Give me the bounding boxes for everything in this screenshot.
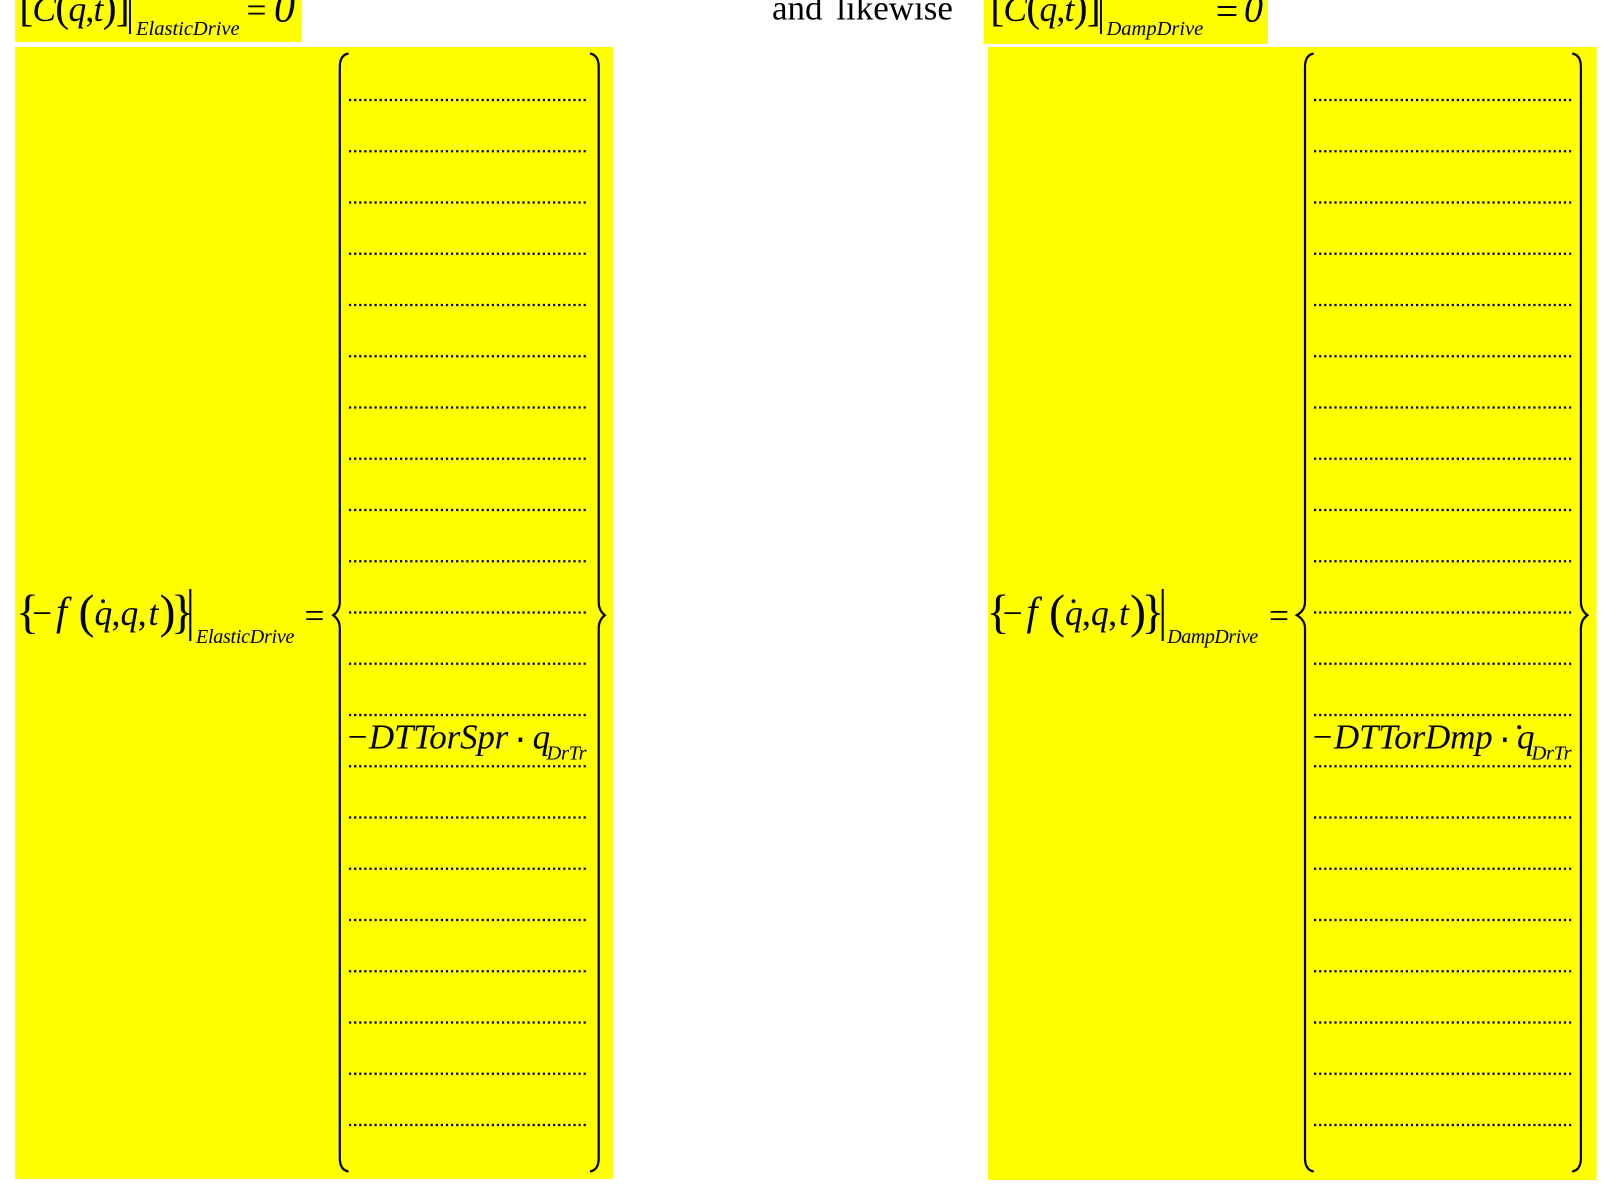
- svg-text:=: =: [1216, 0, 1239, 34]
- svg-text:0: 0: [1244, 0, 1263, 31]
- svg-text:0: 0: [274, 0, 295, 32]
- svg-text:DampDrive: DampDrive: [1166, 626, 1258, 648]
- svg-text:{−f(q,q,t)}: {−f(q,q,t)}: [16, 585, 194, 638]
- svg-text:ElasticDrive: ElasticDrive: [135, 18, 240, 40]
- svg-text:=: =: [305, 596, 325, 636]
- svg-text:DrTr: DrTr: [546, 743, 588, 765]
- svg-text:DampDrive: DampDrive: [1106, 18, 1204, 40]
- svg-text:[C(q,t)]: [C(q,t)]: [990, 0, 1100, 31]
- svg-text:DrTr: DrTr: [1531, 743, 1573, 765]
- svg-text:and likewise: and likewise: [772, 0, 953, 28]
- svg-text:ElasticDrive: ElasticDrive: [195, 626, 294, 648]
- svg-text:−DTTorSpr ⋅ q: −DTTorSpr ⋅ q: [346, 717, 550, 760]
- svg-text:[C(q,t)]: [C(q,t)]: [19, 0, 129, 31]
- svg-text:−DTTorDmp ⋅ q: −DTTorDmp ⋅ q: [1311, 717, 1535, 760]
- svg-text:=: =: [1269, 596, 1289, 636]
- svg-text:=: =: [247, 0, 267, 30]
- svg-text:{−f(q,q,t)}: {−f(q,q,t)}: [987, 585, 1165, 638]
